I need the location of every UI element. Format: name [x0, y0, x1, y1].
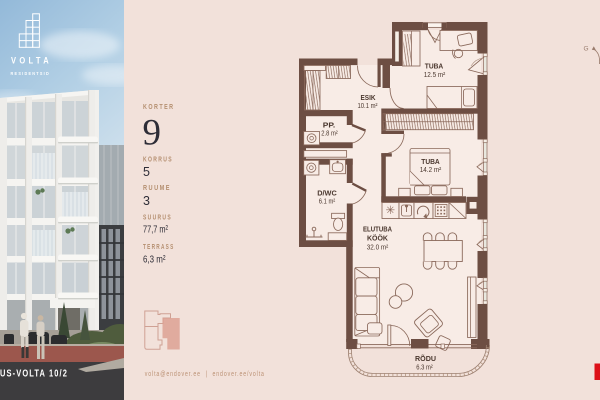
svg-text:3: 3 [143, 194, 150, 208]
svg-text:14.2 m²: 14.2 m² [420, 167, 442, 174]
svg-text:KORRUS: KORRUS [143, 155, 173, 164]
svg-text:6.1 m²: 6.1 m² [319, 199, 336, 206]
svg-text:32.0 m²: 32.0 m² [367, 245, 389, 252]
svg-text:G: G [584, 46, 589, 53]
svg-text:TUBA: TUBA [425, 62, 444, 71]
svg-text:9: 9 [143, 113, 162, 154]
svg-text:ELUTUBA: ELUTUBA [363, 225, 393, 234]
svg-text:TERRASS: TERRASS [143, 242, 175, 251]
svg-text:RUUME: RUUME [143, 183, 171, 192]
svg-text:6,3 m²: 6,3 m² [143, 254, 166, 266]
svg-text:PP.: PP. [323, 121, 336, 130]
svg-text:VOLTA: VOLTA [11, 56, 52, 67]
svg-text:volta@endover.ee | endover.e: volta@endover.ee | endover.ee/volta [145, 371, 265, 378]
svg-text:D/WC: D/WC [317, 189, 337, 198]
svg-text:KORTER: KORTER [143, 102, 175, 111]
svg-text:RÕDU: RÕDU [415, 354, 436, 363]
svg-text:77,7 m²: 77,7 m² [143, 224, 168, 236]
svg-text:SUURUS: SUURUS [143, 213, 172, 222]
svg-text:ESIK: ESIK [361, 93, 377, 102]
svg-text:TUBA: TUBA [421, 157, 440, 166]
svg-text:✳: ✳ [385, 205, 395, 217]
svg-text:5: 5 [143, 165, 150, 179]
svg-text:KÖÖK: KÖÖK [367, 234, 389, 243]
svg-text:6.3 m²: 6.3 m² [416, 365, 433, 372]
svg-text:2.8 m²: 2.8 m² [321, 131, 338, 138]
svg-text:10.1 m²: 10.1 m² [358, 103, 379, 110]
svg-text:US-VOLTA 10/2: US-VOLTA 10/2 [0, 369, 68, 380]
svg-text:RESIDENTSID: RESIDENTSID [11, 71, 51, 76]
svg-text:12.5 m²: 12.5 m² [424, 72, 446, 79]
